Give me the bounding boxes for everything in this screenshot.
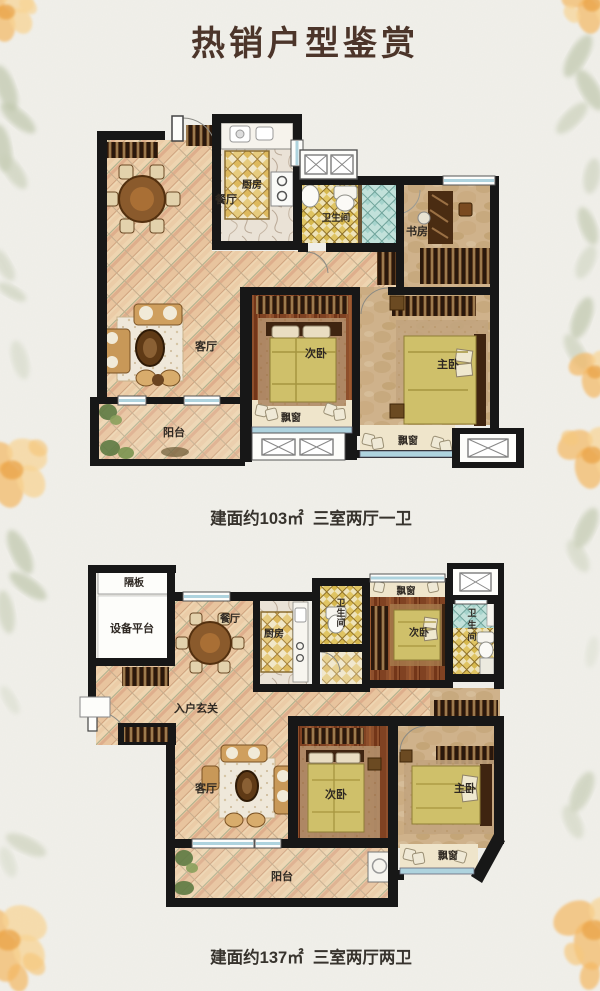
svg-text:次卧: 次卧 xyxy=(409,626,429,639)
svg-text:卫生间: 卫生间 xyxy=(322,212,351,224)
svg-text:餐厅: 餐厅 xyxy=(214,192,237,206)
svg-text:卫: 卫 xyxy=(336,598,345,608)
svg-text:生: 生 xyxy=(336,607,345,618)
svg-text:卫: 卫 xyxy=(467,608,476,618)
svg-text:客厅: 客厅 xyxy=(194,339,217,353)
svg-text:书房: 书房 xyxy=(406,224,428,238)
svg-text:主卧: 主卧 xyxy=(454,781,476,795)
svg-text:生: 生 xyxy=(467,619,476,630)
svg-text:飘窗: 飘窗 xyxy=(398,434,418,447)
svg-text:飘窗: 飘窗 xyxy=(395,585,416,597)
svg-text:客厅: 客厅 xyxy=(194,781,217,795)
svg-text:飘窗: 飘窗 xyxy=(281,411,301,424)
svg-text:飘窗: 飘窗 xyxy=(438,849,458,862)
svg-text:设备平台: 设备平台 xyxy=(110,621,154,635)
svg-text:入户玄关: 入户玄关 xyxy=(174,701,218,715)
svg-text:间: 间 xyxy=(336,617,345,628)
svg-text:次卧: 次卧 xyxy=(305,346,327,360)
svg-text:阳台: 阳台 xyxy=(163,425,185,439)
svg-text:主卧: 主卧 xyxy=(437,357,459,371)
svg-text:餐厅: 餐厅 xyxy=(219,612,240,625)
svg-text:厨房: 厨房 xyxy=(264,627,284,640)
svg-text:阳台: 阳台 xyxy=(271,869,293,883)
svg-text:间: 间 xyxy=(467,631,476,642)
svg-text:厨房: 厨房 xyxy=(242,178,262,191)
svg-text:隔板: 隔板 xyxy=(124,576,145,589)
svg-text:次卧: 次卧 xyxy=(325,787,347,801)
